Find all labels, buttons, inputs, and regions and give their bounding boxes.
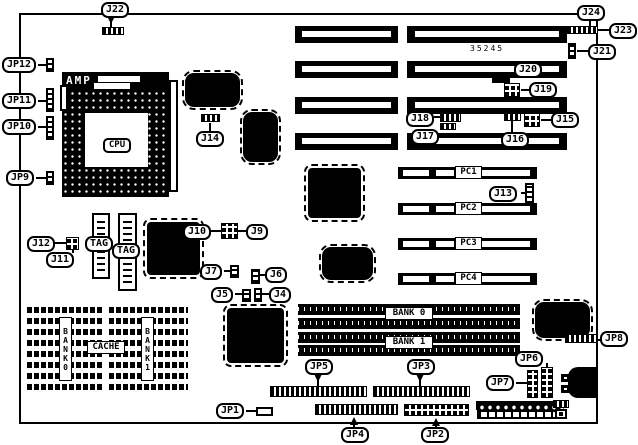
jp3-wire	[419, 380, 421, 386]
callout-jp2: JP2	[421, 427, 449, 443]
j17-header	[440, 123, 456, 130]
jp10-wire	[38, 126, 46, 128]
callout-jp7: JP7	[486, 375, 514, 391]
callout-j16: J16	[501, 132, 529, 148]
j13-wire	[521, 192, 525, 194]
board-part-number: 35245	[470, 44, 504, 53]
j7-wire	[224, 270, 230, 272]
callout-j19: J19	[529, 82, 557, 98]
j16-header	[504, 113, 521, 121]
j10-wire	[211, 230, 221, 232]
pci-slot-label-pc4: PC4	[455, 272, 482, 285]
jp4-header	[315, 404, 398, 415]
jp7-block	[527, 370, 538, 398]
callout-j4: J4	[269, 287, 291, 303]
j15-jumper-block	[524, 113, 540, 127]
j6-jumper	[251, 269, 260, 284]
jp1-wire	[246, 410, 256, 412]
callout-j17: J17	[411, 129, 439, 145]
callout-jp6: JP6	[515, 351, 543, 367]
jp8-header	[565, 334, 597, 343]
j22-wire	[110, 22, 112, 27]
keyboard-din-connector	[568, 367, 598, 398]
jp11-jumper	[46, 88, 54, 112]
callout-j10: J10	[183, 224, 211, 240]
j16-wire	[511, 121, 513, 132]
isa-slot-row3-left	[295, 97, 398, 114]
pci-slot-label-pc2: PC2	[455, 202, 482, 215]
isa-slot-row1-right	[407, 26, 567, 43]
corner-component-dot	[559, 412, 563, 416]
chip-center-small	[322, 247, 373, 280]
jp7-wire	[516, 382, 527, 384]
isa-slot-row1-left	[295, 26, 398, 43]
callout-j9: J9	[246, 224, 268, 240]
pci-slot-label-pc1: PC1	[455, 166, 482, 179]
callout-jp1: JP1	[216, 403, 244, 419]
isa-slot-row2-left	[295, 61, 398, 78]
simm-bank0-label: BANK 0	[385, 307, 433, 320]
j14-wire	[209, 123, 211, 131]
pci-slot-label-pc3: PC3	[455, 237, 482, 250]
j9-wire	[238, 230, 246, 232]
j10-j9-jumpers	[221, 223, 238, 239]
jp10-jumper	[46, 116, 54, 140]
callout-jp10: JP10	[2, 119, 36, 135]
power-connector-body	[477, 410, 564, 419]
jp6-wire	[546, 363, 548, 368]
jp5-header	[270, 386, 367, 397]
callout-j13: J13	[489, 186, 517, 202]
zif-lever-left	[60, 85, 68, 111]
j12-wire	[55, 242, 66, 244]
j20-component	[492, 76, 510, 83]
callout-jp12: JP12	[2, 57, 36, 73]
jp6-block	[541, 367, 553, 398]
j4-wire	[262, 293, 269, 295]
callout-j18: J18	[406, 111, 434, 127]
cpu-label: CPU	[103, 138, 131, 153]
cache-label: CACHE	[87, 341, 125, 354]
corner-component-pins	[553, 400, 569, 408]
j5-wire	[235, 293, 242, 295]
chipset-qfp-lower	[227, 308, 284, 363]
j22-header	[102, 27, 124, 35]
jp12-wire	[38, 64, 46, 66]
callout-j11: J11	[46, 252, 74, 268]
chip-right-edge	[535, 302, 590, 338]
din-tab	[561, 374, 570, 382]
callout-j20: J20	[514, 62, 542, 78]
callout-j7: J7	[200, 264, 222, 280]
callout-j22: J22	[101, 2, 129, 18]
callout-j23: J23	[609, 23, 637, 39]
cache-bank0-label: BANK0	[59, 317, 72, 381]
callout-j15: J15	[551, 112, 579, 128]
callout-jp4: JP4	[341, 427, 369, 443]
jp3-header	[373, 386, 470, 397]
j18-header	[440, 113, 461, 122]
cpu-socket-brand-label: AMP	[66, 74, 92, 87]
j21-jumper	[568, 43, 576, 59]
cache-bank1-label: BANK1	[141, 317, 154, 381]
jp11-wire	[38, 100, 46, 102]
callout-j21: J21	[588, 44, 616, 60]
jp12-jumper	[46, 58, 54, 72]
simm-bank1-label: BANK 1	[385, 336, 433, 349]
j4-jumper	[254, 288, 262, 302]
callout-j24: J24	[577, 5, 605, 21]
power-connector-pins	[476, 401, 564, 410]
isa-slot-row2-right	[407, 61, 567, 78]
jp9-jumper	[46, 171, 54, 185]
jp1-component	[256, 407, 273, 416]
j14-header	[201, 114, 220, 122]
motherboard-diagram: 35245 PC1 PC2 PC3 PC4 AMP CPU TAG TAG BA…	[0, 0, 638, 445]
j19-jumper-block	[504, 83, 520, 97]
callout-j6: J6	[265, 267, 287, 283]
callout-jp9: JP9	[6, 170, 34, 186]
callout-j14: J14	[196, 131, 224, 147]
callout-jp8: JP8	[600, 331, 628, 347]
jp2-header	[404, 404, 469, 416]
chipset-qfp-upper	[308, 168, 361, 218]
chip-near-cpu	[185, 73, 240, 107]
jp9-wire	[36, 177, 46, 179]
amp-bar-detail	[98, 76, 140, 82]
callout-jp11: JP11	[2, 93, 36, 109]
j5-jumper	[242, 289, 251, 302]
zif-lever-right	[169, 80, 178, 192]
callout-j5: J5	[211, 287, 233, 303]
j11-wire	[72, 249, 74, 253]
callout-jp3: JP3	[407, 359, 435, 375]
j13-jumper	[525, 183, 534, 205]
jp5-wire	[317, 380, 319, 386]
chip-vertical-center	[243, 112, 278, 162]
callout-j12: J12	[27, 236, 55, 252]
isa-slot-row4-left	[295, 133, 398, 150]
j18-wire	[434, 116, 440, 118]
callout-jp5: JP5	[305, 359, 333, 375]
j24-j23-header	[567, 26, 598, 34]
j7-jumper	[230, 265, 239, 278]
amp-bar-detail	[94, 83, 130, 89]
tag-label-1: TAG	[85, 236, 113, 252]
din-tab	[561, 385, 570, 393]
tag-label-2: TAG	[112, 243, 140, 259]
